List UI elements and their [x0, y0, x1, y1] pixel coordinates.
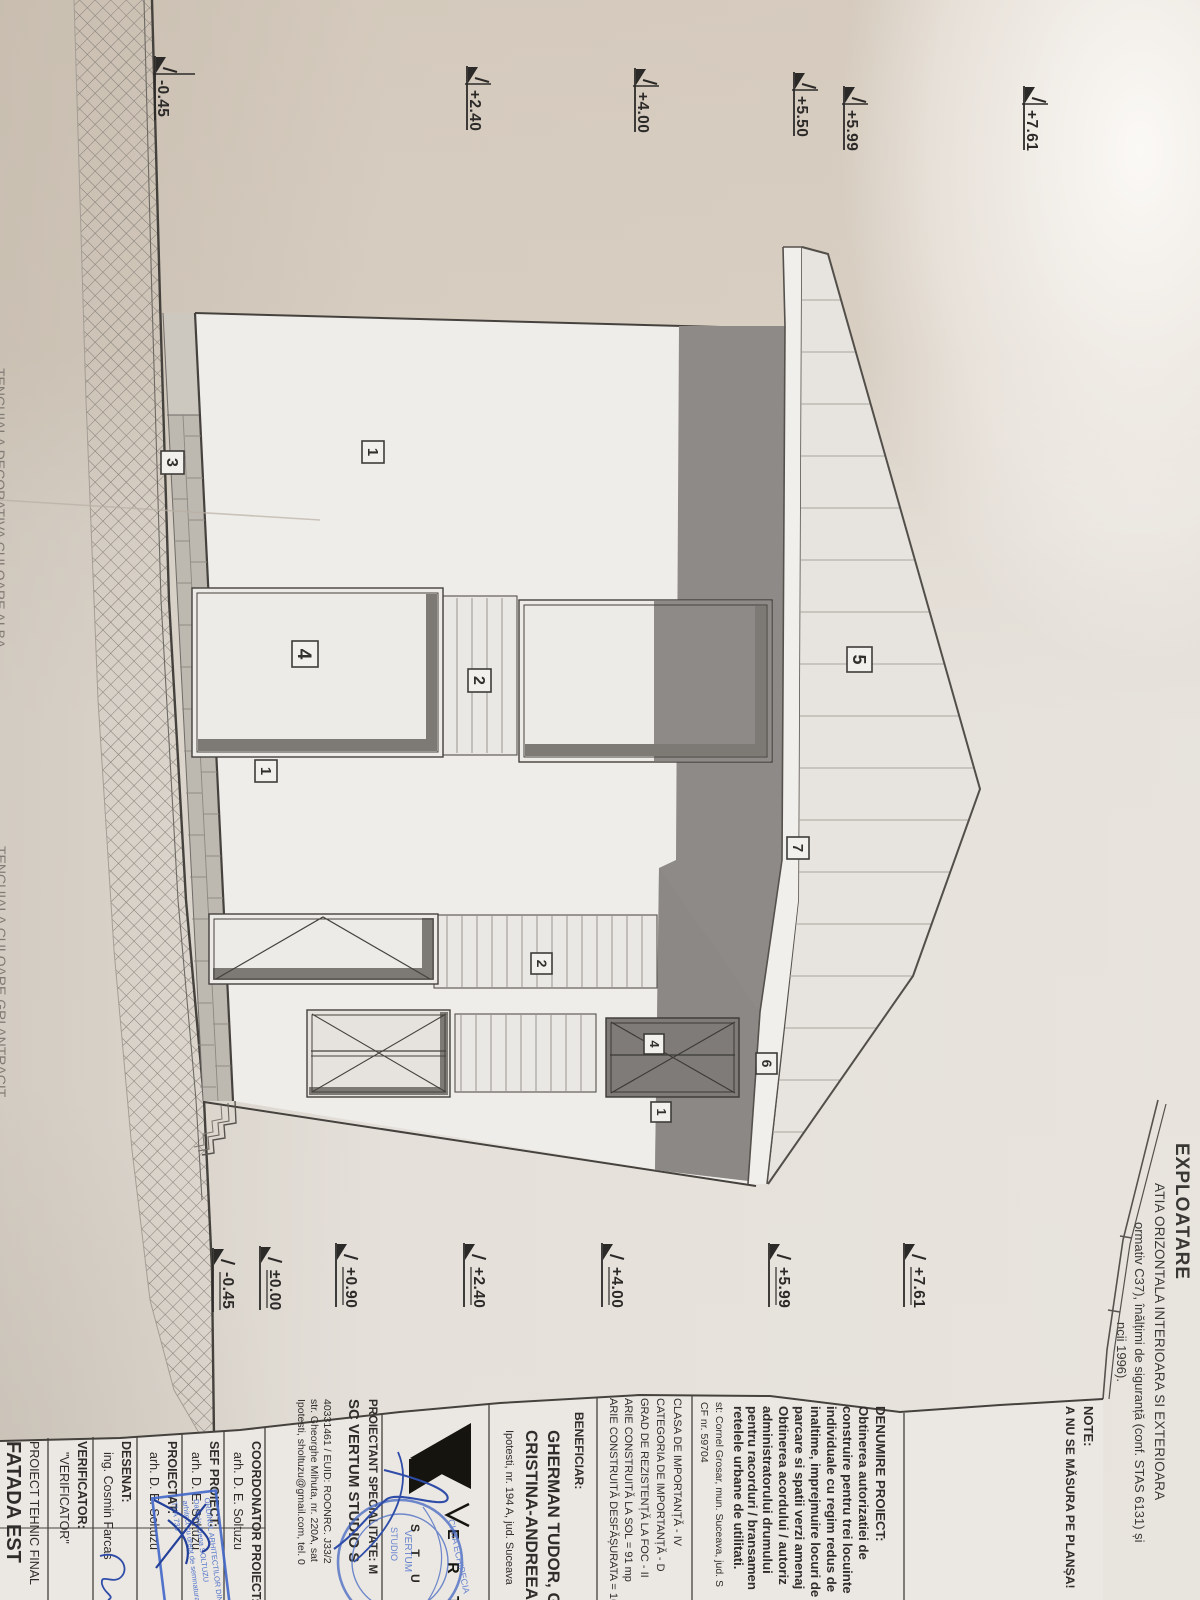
svg-text:4: 4 — [293, 649, 314, 660]
svg-text:A NU SE MĂSURA PE PLANȘA!: A NU SE MĂSURA PE PLANȘA! — [1063, 1406, 1078, 1589]
svg-text:individuale cu regim redus de: individuale cu regim redus de — [824, 1406, 839, 1592]
svg-text:inaltime, imprejmuire locuri d: inaltime, imprejmuire locuri de — [808, 1406, 823, 1597]
svg-text:TENCUIALA CULOARE GRI ANTRACIT: TENCUIALA CULOARE GRI ANTRACIT — [0, 846, 9, 1098]
svg-text:Ipotesti, sholtuzu@gmail.com,: Ipotesti, sholtuzu@gmail.com, tel. 0 — [295, 1399, 307, 1565]
svg-text:7: 7 — [789, 844, 806, 852]
svg-text:pentru racorduri / bransamen: pentru racorduri / bransamen — [745, 1406, 760, 1590]
svg-text:FATADA EST: FATADA EST — [2, 1441, 24, 1563]
svg-text:Obtinerea autorizatiei de: Obtinerea autorizatiei de — [856, 1406, 871, 1560]
svg-text:±0.00: ±0.00 — [266, 1270, 283, 1311]
svg-text:+4.00: +4.00 — [634, 92, 651, 133]
svg-text:1: 1 — [654, 1108, 669, 1115]
svg-text:40331461 / EUID: ROONRC. J33/2: 40331461 / EUID: ROONRC. J33/2 — [321, 1399, 333, 1564]
svg-text:+5.99: +5.99 — [843, 110, 860, 151]
svg-text:st: Cornel Grosar, mun. Suceav: st: Cornel Grosar, mun. Suceava, jud. S — [713, 1402, 725, 1587]
svg-text:ing. Cosmin Farcas: ing. Cosmin Farcas — [101, 1452, 115, 1560]
svg-text:str. Gheorghe Mihuta, nr. 220A: str. Gheorghe Mihuta, nr. 220A, sat — [308, 1399, 320, 1562]
svg-text:"VERIFICATOR": "VERIFICATOR" — [57, 1452, 71, 1544]
svg-text:VERIFICATOR:: VERIFICATOR: — [75, 1441, 89, 1529]
svg-text:TENCUIALA DECORATIVA CULOARE A: TENCUIALA DECORATIVA CULOARE ALBA — [0, 368, 8, 649]
svg-text:Obtinerea acordului / autoriz: Obtinerea acordului / autoriz — [776, 1406, 791, 1585]
svg-text:4: 4 — [647, 1040, 662, 1048]
svg-text:ormativ C37), înălțimi de sigu: ormativ C37), înălțimi de siguranță (con… — [1132, 1222, 1147, 1543]
svg-text:+2.40: +2.40 — [470, 1267, 487, 1308]
svg-text:CLASA DE IMPORTANȚĂ - IV: CLASA DE IMPORTANȚĂ - IV — [671, 1398, 684, 1547]
svg-text:+7.61: +7.61 — [1023, 110, 1040, 151]
svg-text:DENUMIRE PROIECT:: DENUMIRE PROIECT: — [873, 1406, 888, 1542]
svg-text:CRISTINA-ANDREEA: CRISTINA-ANDREEA — [522, 1430, 541, 1600]
svg-text:+2.40: +2.40 — [466, 90, 483, 131]
svg-text:2: 2 — [534, 960, 550, 968]
svg-text:BENEFICIAR:: BENEFICIAR: — [572, 1412, 586, 1489]
svg-text:2: 2 — [470, 676, 487, 685]
svg-text:parcare si spatii verzi amenaj: parcare si spatii verzi amenaj — [792, 1406, 807, 1589]
svg-text:CF nr. 59704: CF nr. 59704 — [698, 1402, 710, 1463]
svg-text:6: 6 — [759, 1060, 775, 1068]
svg-text:PROIECT TEHNIC FINAL: PROIECT TEHNIC FINAL — [27, 1441, 41, 1585]
svg-text:ATIA ORIZONTALA INTERIOARA SI: ATIA ORIZONTALA INTERIOARA SI EXTERIOARA — [1152, 1183, 1167, 1500]
svg-text:COORDONATOR PROIECT:: COORDONATOR PROIECT: — [249, 1441, 263, 1600]
svg-text:-0.45: -0.45 — [154, 80, 171, 117]
svg-text:ARIE CONSTRUITĂ DESFĂȘURATA =: ARIE CONSTRUITĂ DESFĂȘURATA = 16 — [607, 1398, 620, 1600]
svg-text:-0.45: -0.45 — [219, 1272, 236, 1309]
svg-text:ARIE CONSTRUITĂ LA SOL = 91 mp: ARIE CONSTRUITĂ LA SOL = 91 mp — [622, 1398, 635, 1582]
svg-text:retelele urbane de utilitati.: retelele urbane de utilitati. — [731, 1406, 746, 1569]
svg-text:ncii 1996).: ncii 1996). — [1114, 1322, 1129, 1382]
svg-text:STUDIO: STUDIO — [389, 1527, 399, 1561]
svg-text:+4.00: +4.00 — [608, 1267, 625, 1308]
svg-text:Ipotesti, nr. 194 A, jud. Suce: Ipotesti, nr. 194 A, jud. Suceava — [503, 1430, 515, 1586]
svg-text:+5.50: +5.50 — [793, 96, 810, 137]
svg-text:GHERMAN TUDOR, GHE: GHERMAN TUDOR, GHE — [544, 1430, 563, 1600]
svg-text:1: 1 — [364, 448, 381, 456]
svg-text:1: 1 — [257, 767, 274, 775]
svg-text:3: 3 — [163, 458, 180, 467]
svg-text:CATEGORIA DE IMPORTANȚĂ - D: CATEGORIA DE IMPORTANȚĂ - D — [654, 1398, 667, 1572]
svg-text:+5.99: +5.99 — [775, 1267, 792, 1308]
svg-text:GRAD DE REZISTENȚĂ LA FOC - II: GRAD DE REZISTENȚĂ LA FOC - II — [638, 1398, 651, 1578]
svg-text:+7.61: +7.61 — [910, 1267, 927, 1308]
svg-text:arh. D. E. Soltuzu: arh. D. E. Soltuzu — [231, 1452, 245, 1550]
svg-text:+0.90: +0.90 — [342, 1267, 359, 1308]
svg-text:EXPLOATARE: EXPLOATARE — [1171, 1143, 1192, 1280]
svg-text:VERTUM: VERTUM — [402, 1530, 413, 1572]
svg-text:administratorului drumului: administratorului drumului — [760, 1406, 775, 1574]
svg-text:NOTE:: NOTE: — [1081, 1406, 1096, 1446]
svg-text:DESENAT:: DESENAT: — [119, 1441, 133, 1503]
svg-text:construire pentru trei locuint: construire pentru trei locuinte — [840, 1406, 855, 1594]
svg-text:5: 5 — [849, 654, 869, 664]
